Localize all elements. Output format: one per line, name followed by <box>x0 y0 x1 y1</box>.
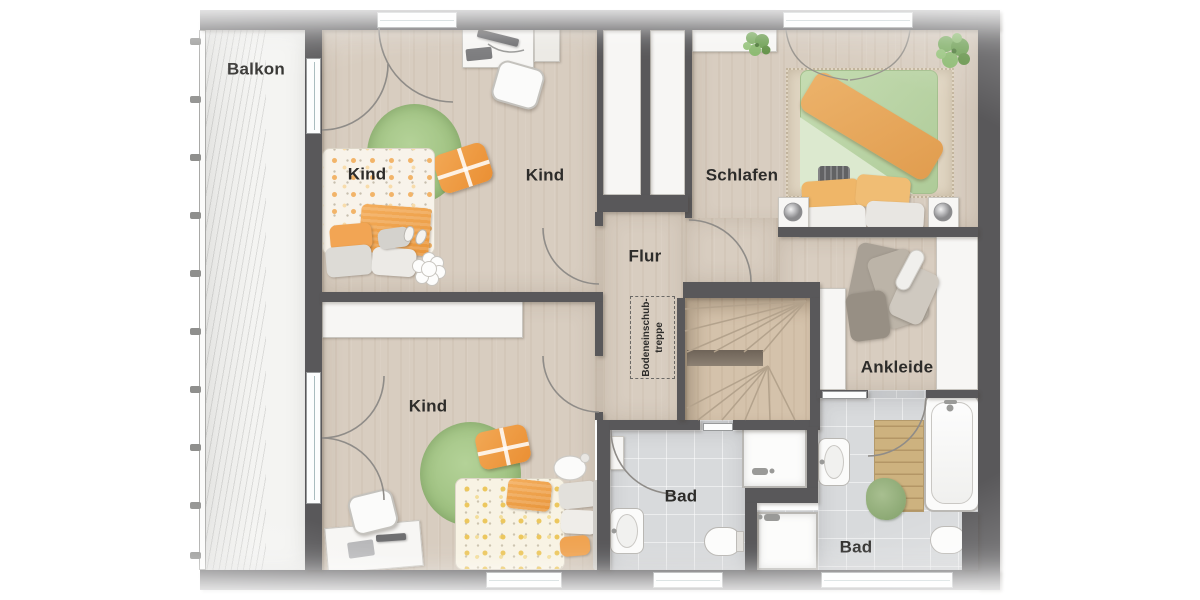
window <box>821 572 953 588</box>
clothes-pile <box>845 289 891 342</box>
railing-post <box>190 154 201 161</box>
balcony-railing <box>199 30 206 570</box>
sideboard <box>322 298 523 338</box>
stair-void-edge <box>687 350 763 366</box>
railing-post <box>190 270 201 277</box>
wall <box>778 227 978 237</box>
railing-post <box>190 96 201 103</box>
toilet <box>930 526 966 554</box>
railing-post <box>190 386 201 393</box>
schlafen-alcove-floor <box>685 218 778 282</box>
wall <box>807 427 818 488</box>
wall <box>685 30 692 218</box>
shower <box>757 512 818 570</box>
wall <box>677 298 685 420</box>
wall <box>597 420 610 570</box>
nightstand <box>778 197 809 228</box>
wall <box>595 412 603 420</box>
railing-post <box>190 212 201 219</box>
room-label-ankleide: Ankleide <box>861 359 933 376</box>
room-label-bad-center: Bad <box>665 488 698 505</box>
window <box>783 12 913 28</box>
wall <box>610 420 700 430</box>
railing-post <box>190 502 201 509</box>
shower <box>742 428 807 488</box>
wardrobe <box>818 288 846 390</box>
room-label-bad-right: Bad <box>840 539 873 556</box>
wardrobe <box>936 232 978 390</box>
balcony-hatch <box>204 30 266 570</box>
wall-right <box>978 10 1000 590</box>
wall <box>810 298 820 430</box>
wardrobe <box>650 30 685 195</box>
window <box>653 572 723 588</box>
room-label-kind-bottom: Kind <box>409 398 448 415</box>
window <box>486 572 562 588</box>
wall <box>597 195 688 212</box>
wall <box>926 390 978 398</box>
wardrobe <box>603 30 641 195</box>
wall <box>683 282 820 298</box>
room-label-schlafen: Schlafen <box>706 167 778 184</box>
wall <box>962 512 978 570</box>
sink-bowl <box>616 514 638 548</box>
door-gap-bad-right <box>868 390 926 398</box>
door-leaf <box>703 423 733 431</box>
railing-post <box>190 552 201 559</box>
pillow <box>559 535 591 558</box>
door-leaf <box>822 391 867 399</box>
desk-return <box>534 28 560 62</box>
wall <box>745 503 757 570</box>
floor-plan: Balkon Kind Kind Schlafen Flur Kind Bad … <box>0 0 1200 600</box>
attic-stairs-label-line1: Bodeneinschub- <box>640 298 653 376</box>
attic-stairs-label-line2: treppe <box>653 322 666 353</box>
wall <box>733 420 810 430</box>
room-label-kind-top-bed: Kind <box>348 166 387 183</box>
sink-bowl <box>824 445 844 479</box>
pillow <box>371 246 417 277</box>
attic-stairs-label: Bodeneinschub- treppe <box>635 293 670 382</box>
window <box>377 12 457 28</box>
pillow <box>325 244 373 278</box>
room-label-balkon: Balkon <box>227 61 285 78</box>
balcony-door <box>306 58 321 134</box>
door-gap-kind-top <box>595 226 603 292</box>
railing-post <box>190 444 201 451</box>
cabinet <box>692 28 777 52</box>
railing-post <box>190 328 201 335</box>
room-label-flur: Flur <box>629 248 662 265</box>
bed-blanket <box>506 478 553 512</box>
nightstand <box>928 197 959 228</box>
room-label-kind-top: Kind <box>526 167 565 184</box>
wall <box>745 488 818 503</box>
wall <box>320 292 603 302</box>
bathtub-inner <box>931 402 973 504</box>
toilet-tank <box>736 531 744 552</box>
towel-pile <box>866 478 906 520</box>
bath-cabinet <box>610 436 624 470</box>
wall <box>641 30 650 195</box>
railing-post <box>190 38 201 45</box>
wall <box>597 30 603 195</box>
door-gap-kind-bottom <box>595 356 603 412</box>
wall <box>595 212 603 226</box>
balcony-double-door <box>306 372 321 504</box>
wall <box>595 302 603 356</box>
